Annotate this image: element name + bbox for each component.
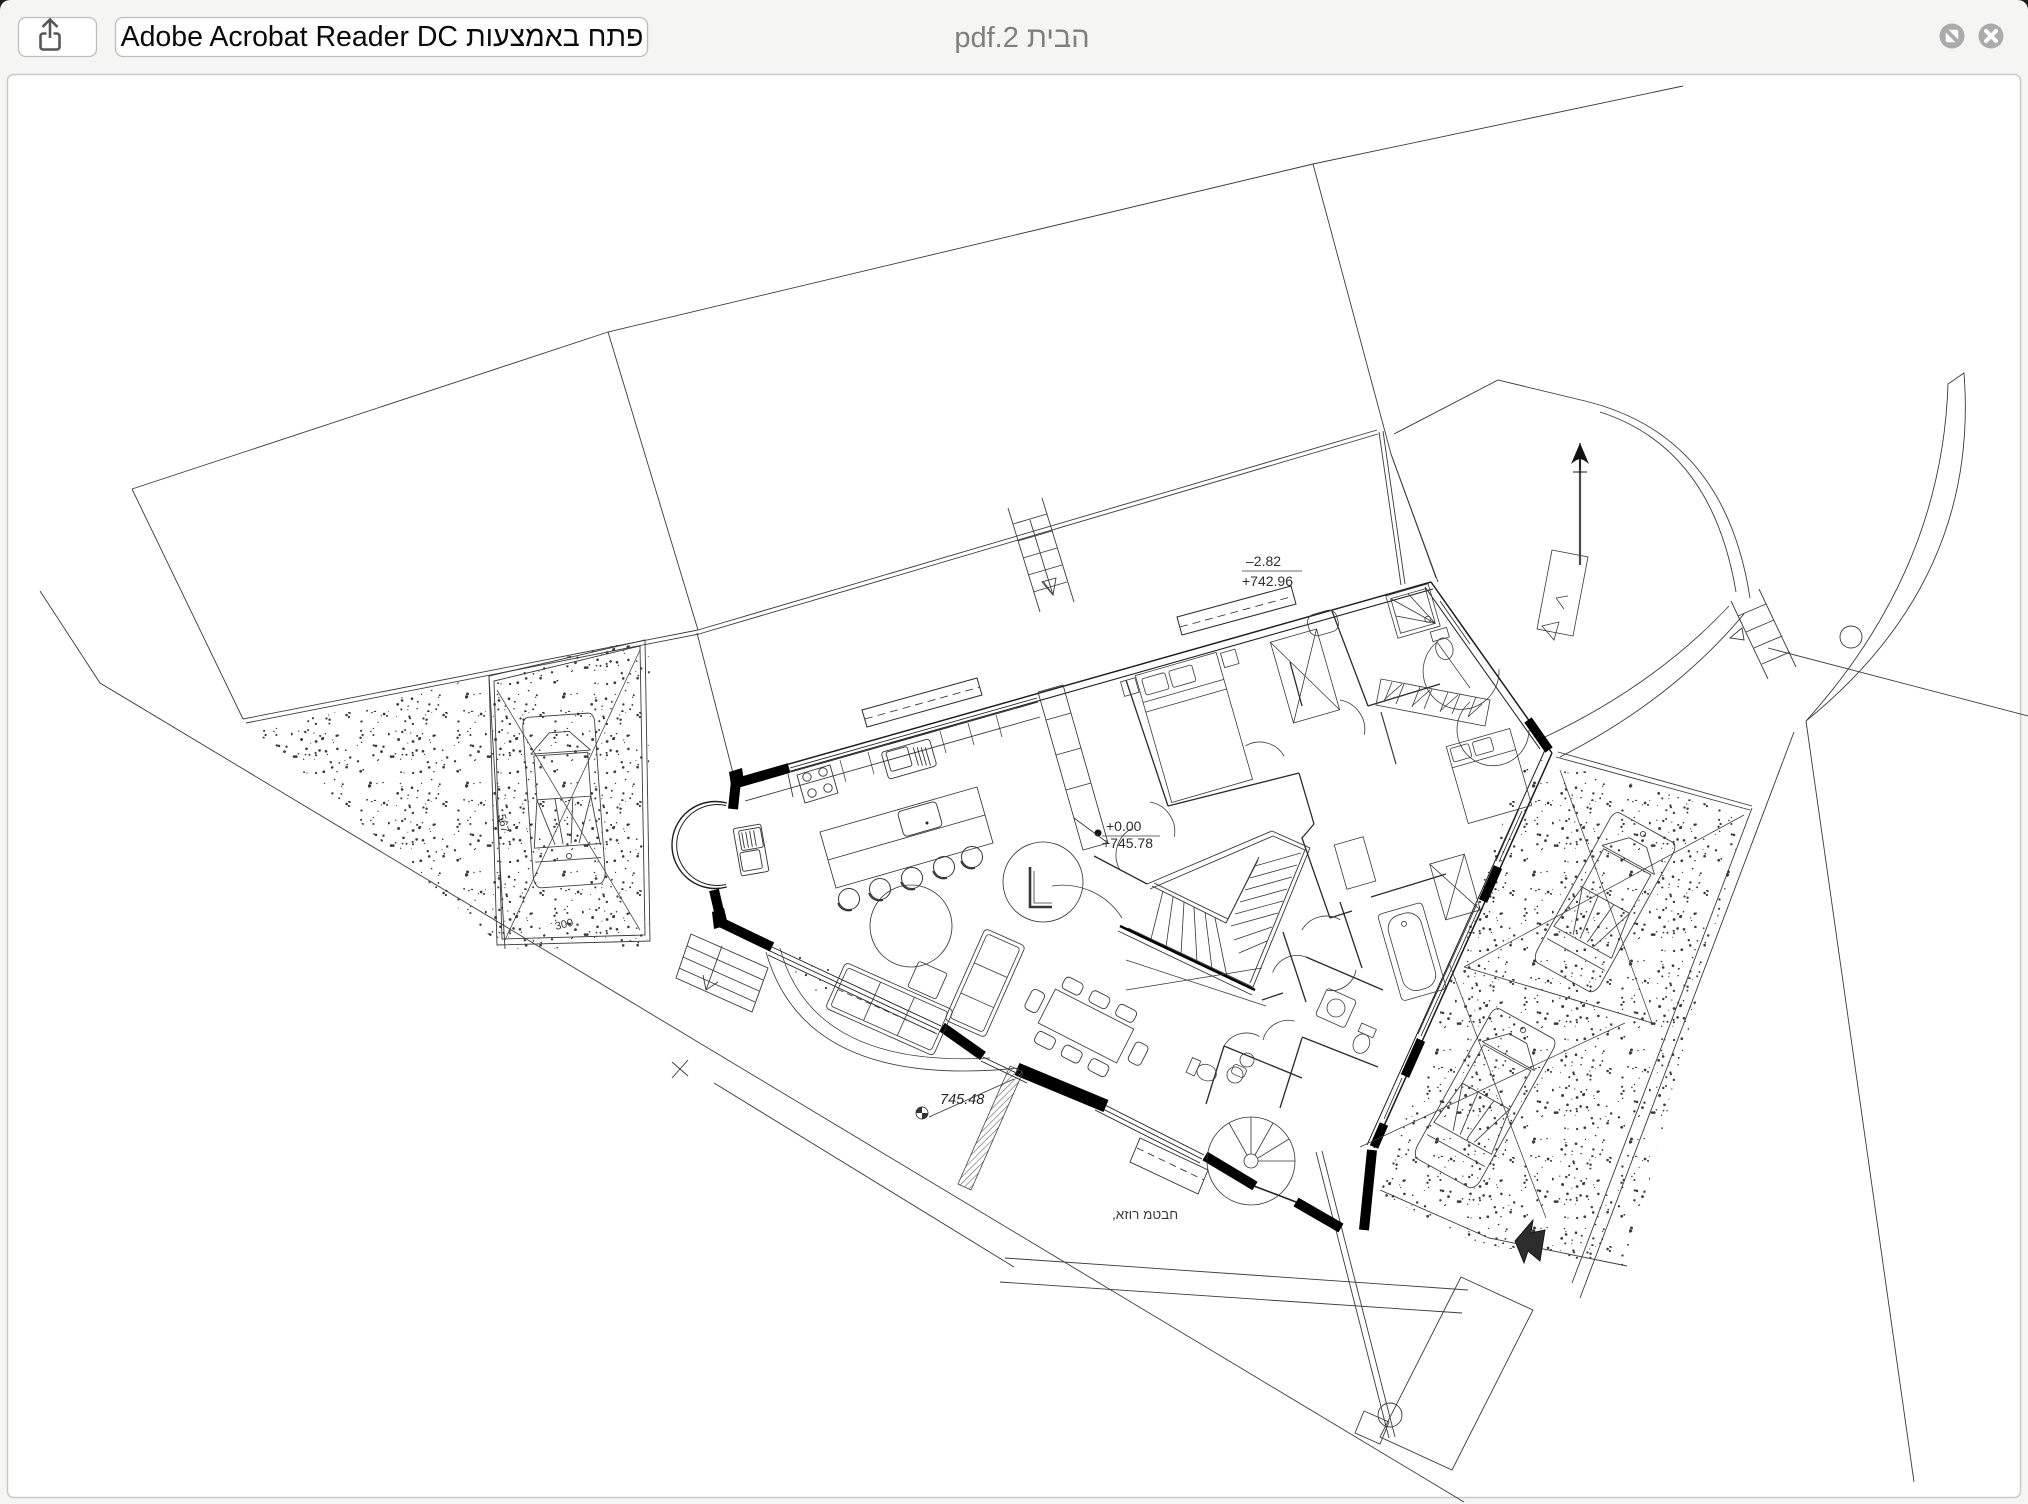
svg-text:+0.00: +0.00 xyxy=(1106,818,1142,834)
svg-text:745.48: 745.48 xyxy=(940,1092,984,1108)
svg-text:+745.78: +745.78 xyxy=(1102,835,1153,851)
svg-text:pdf.2 הבית: pdf.2 הבית xyxy=(954,22,1089,54)
svg-text:Adobe Acrobat Reader DC פתח בא: Adobe Acrobat Reader DC פתח באמצעות xyxy=(121,21,644,53)
svg-text:,חבטמ רוזא: ,חבטמ רוזא xyxy=(1112,1207,1178,1222)
svg-text:–2.82: –2.82 xyxy=(1246,553,1281,569)
svg-text:+742.96: +742.96 xyxy=(1242,573,1293,589)
